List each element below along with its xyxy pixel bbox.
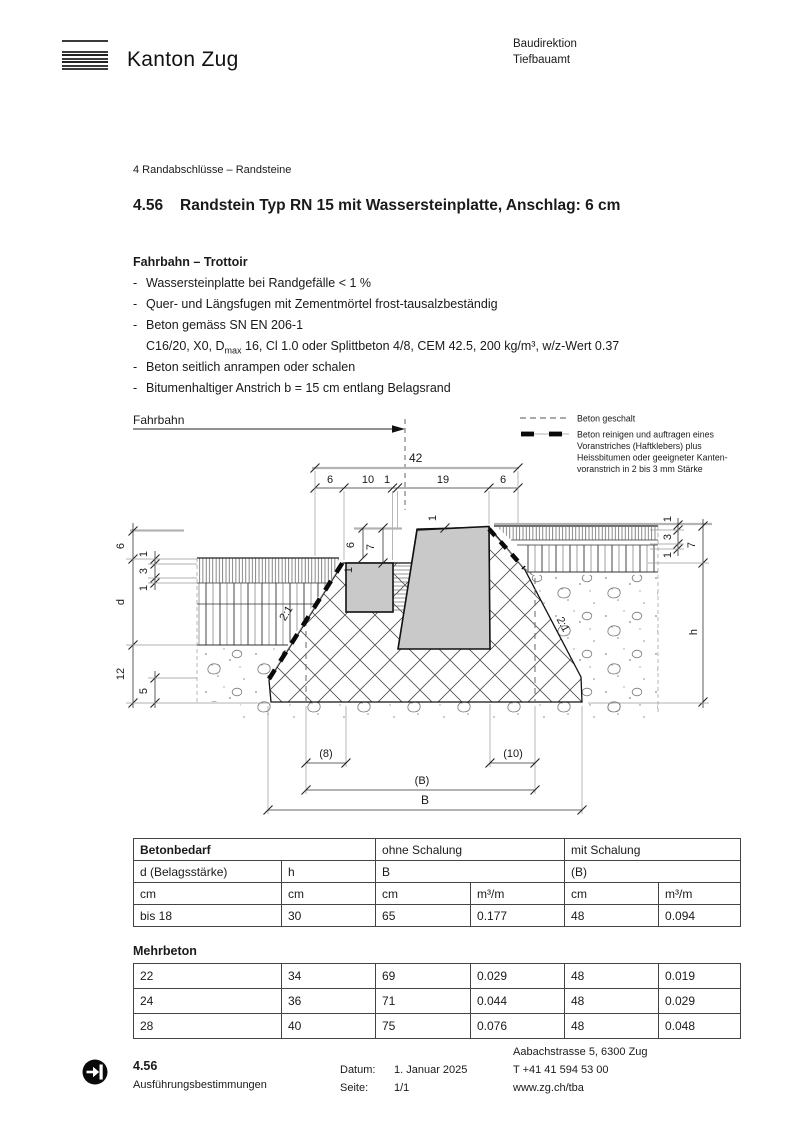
dim-right-2: 1 (662, 552, 674, 558)
dim-plate-0: 6 (345, 542, 357, 548)
dim-right-0: 1 (662, 516, 674, 522)
list-item: - Beton gemäss SN EN 206-1 (133, 318, 733, 339)
dim-chain-bottom: (8) (10) (B) B (264, 706, 587, 815)
randstein-rn15 (398, 527, 490, 650)
table-row: Betonbedarf ohne Schalung mit Schalung (134, 839, 741, 861)
table-row: d (Belagsstärke) h B (B) (134, 861, 741, 883)
mehrbeton-table: 22 34 69 0.029 48 0.019 24 36 71 0.044 4… (133, 963, 741, 1039)
legend-bitumen-sample (521, 432, 569, 437)
org-line1: Baudirektion (513, 36, 577, 52)
table-cell: h (282, 861, 376, 883)
dim-right-4: h (688, 629, 700, 635)
dim-top-3: 19 (437, 474, 449, 486)
title-text: Randstein Typ RN 15 mit Wassersteinplatt… (180, 197, 620, 214)
table-cell: ohne Schalung (376, 839, 565, 861)
table-cell: 34 (282, 964, 376, 989)
footer-web-link[interactable]: www.zg.ch/tba (513, 1079, 648, 1097)
dim-left-1: 1 (138, 551, 150, 557)
section-heading: Fahrbahn – Trottoir (133, 255, 248, 269)
table-cell: 48 (565, 989, 659, 1014)
dim-bottom-2: (B) (415, 775, 430, 787)
footer-phone: T +41 41 594 53 00 (513, 1061, 648, 1079)
table-cell: 22 (134, 964, 282, 989)
table-cell: bis 18 (134, 905, 282, 927)
legend-item2-line2: Voranstriches (Haftklebers) plus (577, 441, 702, 451)
fahrbahn-arrow: Fahrbahn (133, 413, 405, 510)
list-item-text: Beton gemäss SN EN 206-1 (146, 318, 303, 332)
dim-right-1: 3 (662, 534, 674, 540)
table-cell: 40 (282, 1014, 376, 1039)
page-label: Seite: (340, 1079, 394, 1097)
dim-bottom-3: B (421, 793, 429, 807)
date-label: Datum: (340, 1061, 394, 1079)
breadcrumb: 4 Randabschlüsse – Randsteine (133, 164, 291, 176)
fahrbahn-label: Fahrbahn (133, 413, 184, 427)
legend-item2-line4: voranstrich in 2 bis 3 mm Stärke (577, 464, 703, 474)
table-cell: 0.076 (471, 1014, 565, 1039)
table-cell: Betonbedarf (134, 839, 376, 861)
bullet-dash: - (133, 318, 137, 332)
dim-left-3: 1 (138, 585, 150, 591)
list-item-text: Quer- und Längsfugen mit Zementmörtel fr… (146, 297, 498, 311)
table-cell: B (376, 861, 565, 883)
dim-bottom-0: (8) (319, 748, 332, 760)
brand-text: Kanton Zug (127, 48, 239, 72)
table-cell: m³/m (471, 883, 565, 905)
dim-left-6: 5 (138, 688, 150, 694)
table-cell: 65 (376, 905, 471, 927)
title-number: 4.56 (133, 197, 180, 215)
dim-top-1: 10 (362, 474, 374, 486)
footer-date-row: Datum:1. Januar 2025 (340, 1061, 467, 1079)
table-cell: mit Schalung (565, 839, 741, 861)
list-item-text: Beton seitlich anrampen oder schalen (146, 360, 355, 374)
legend-item1: Beton geschalt (577, 414, 636, 424)
legend-item2-line1: Beton reinigen und auftragen eines (577, 430, 715, 440)
cross-section-drawing: Fahrbahn Beton geschalt Beton reinigen u… (90, 405, 770, 830)
table-cell: 0.048 (659, 1014, 741, 1039)
betonbedarf-table: Betonbedarf ohne Schalung mit Schalung d… (133, 838, 741, 927)
table-cell: 0.019 (659, 964, 741, 989)
dim-left-5: 12 (115, 668, 127, 680)
mehrbeton-heading: Mehrbeton (133, 944, 197, 958)
footer-doc-type: Ausführungsbestimmungen (133, 1079, 267, 1091)
table-cell: 48 (565, 905, 659, 927)
dim-right-3: 7 (686, 542, 698, 548)
table-cell: 75 (376, 1014, 471, 1039)
table-cell: 0.094 (659, 905, 741, 927)
table-cell: d (Belagsstärke) (134, 861, 282, 883)
footer-page-row: Seite:1/1 (340, 1079, 467, 1097)
footer-meta: Datum:1. Januar 2025 Seite:1/1 (340, 1061, 467, 1097)
list-item-continuation: C16/20, X0, Dmax 16, Cl 1.0 oder Splittb… (133, 339, 733, 360)
footer-doc-number: 4.56 (133, 1059, 157, 1073)
dim-left-2: 3 (138, 568, 150, 574)
list-item-text: Wassersteinplatte bei Randgefälle < 1 % (146, 276, 371, 290)
document-page: { "header": { "brand": "Kanton Zug", "or… (0, 0, 794, 1123)
table-cell: 28 (134, 1014, 282, 1039)
table-row: 24 36 71 0.044 48 0.029 (134, 989, 741, 1014)
spec-list: - Wassersteinplatte bei Randgefälle < 1 … (133, 276, 733, 402)
list-item: - Beton seitlich anrampen oder schalen (133, 360, 733, 381)
table-cell: 36 (282, 989, 376, 1014)
list-item: - Bitumenhaltiger Anstrich b = 15 cm ent… (133, 381, 733, 402)
dim-total: 42 (409, 451, 423, 465)
table-cell: 0.044 (471, 989, 565, 1014)
table-cell: 71 (376, 989, 471, 1014)
table-cell: 48 (565, 1014, 659, 1039)
table-cell: m³/m (659, 883, 741, 905)
bullet-dash: - (133, 276, 137, 290)
table-cell: cm (282, 883, 376, 905)
arrow-circle-icon (80, 1057, 110, 1087)
kanton-zug-logo (62, 40, 108, 74)
table-cell: 30 (282, 905, 376, 927)
spec-pre: C16/20, X0, D (146, 339, 225, 353)
table-cell: 48 (565, 964, 659, 989)
org-line2: Tiefbauamt (513, 52, 577, 68)
dim-left-4: d (115, 599, 127, 605)
list-item: - Wassersteinplatte bei Randgefälle < 1 … (133, 276, 733, 297)
table-row: cm cm cm m³/m cm m³/m (134, 883, 741, 905)
footer-contact: Aabachstrasse 5, 6300 Zug T +41 41 594 5… (513, 1043, 648, 1097)
table-cell: 69 (376, 964, 471, 989)
table-cell: cm (134, 883, 282, 905)
table-row: 22 34 69 0.029 48 0.019 (134, 964, 741, 989)
table-row: bis 18 30 65 0.177 48 0.094 (134, 905, 741, 927)
list-item: - Quer- und Längsfugen mit Zementmörtel … (133, 297, 733, 318)
dim-bottom-1: (10) (503, 748, 523, 760)
dim-top-2: 1 (384, 474, 390, 486)
spec-post: 16, Cl 1.0 oder Splittbeton 4/8, CEM 42.… (242, 339, 620, 353)
list-item-text: Bitumenhaltiger Anstrich b = 15 cm entla… (146, 381, 451, 395)
footer-address: Aabachstrasse 5, 6300 Zug (513, 1043, 648, 1061)
table-cell: 0.029 (659, 989, 741, 1014)
table-cell: 0.029 (471, 964, 565, 989)
dim-top-0: 6 (327, 474, 333, 486)
dim-top-4: 6 (500, 474, 506, 486)
legend-item2-line3: Heissbitumen oder geeigneter Kanten- (577, 453, 728, 463)
dim-plate-one: 1 (343, 567, 355, 573)
table-cell: (B) (565, 861, 741, 883)
bullet-dash: - (133, 360, 137, 374)
table-cell: cm (565, 883, 659, 905)
legend: Beton geschalt Beton reinigen und auftra… (520, 414, 728, 475)
table-cell: 0.177 (471, 905, 565, 927)
page-value: 1/1 (394, 1082, 409, 1094)
table-cell: cm (376, 883, 471, 905)
dim-stone-one: 1 (427, 515, 439, 521)
date-value: 1. Januar 2025 (394, 1064, 467, 1076)
bullet-dash: - (133, 381, 137, 395)
beton-spec-text: C16/20, X0, Dmax 16, Cl 1.0 oder Splittb… (146, 339, 619, 356)
table-row: 28 40 75 0.076 48 0.048 (134, 1014, 741, 1039)
bullet-dash: - (133, 297, 137, 311)
dim-plate-1: 7 (365, 544, 377, 550)
dim-left-0: 6 (115, 543, 127, 549)
page-title: 4.56Randstein Typ RN 15 mit Wassersteinp… (133, 197, 620, 215)
org-block: Baudirektion Tiefbauamt (513, 36, 577, 68)
table-cell: 24 (134, 989, 282, 1014)
spec-sub: max (225, 346, 242, 356)
